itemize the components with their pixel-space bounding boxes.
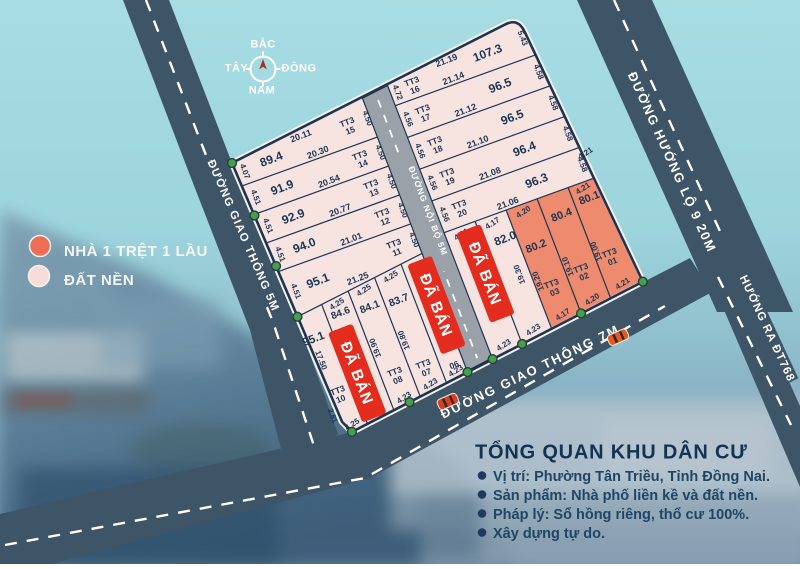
svg-text:TỔNG QUAN KHU DÂN CƯ: TỔNG QUAN KHU DÂN CƯ [475,440,748,464]
svg-text:ĐÔNG: ĐÔNG [282,62,317,75]
svg-text:NHÀ 1 TRỆT 1 LẦU: NHÀ 1 TRỆT 1 LẦU [64,242,208,260]
svg-text:NAM: NAM [249,85,276,97]
svg-text:Pháp lý: Sổ hồng riêng, thổ cư: Pháp lý: Sổ hồng riêng, thổ cư 100%. [493,507,749,523]
svg-text:Vị trí: Phường Tân Triều, Tỉnh: Vị trí: Phường Tân Triều, Tỉnh Đồng Nai. [493,469,770,485]
svg-text:Xây dựng tự do.: Xây dựng tự do. [493,526,605,542]
svg-text:BẮC: BẮC [250,38,275,51]
svg-text:Sản phẩm: Nhà phố liền kề và đ: Sản phẩm: Nhà phố liền kề và đất nền. [493,488,758,504]
svg-text:TÂY: TÂY [225,62,249,75]
svg-text:ĐẤT NỀN: ĐẤT NỀN [64,272,134,289]
